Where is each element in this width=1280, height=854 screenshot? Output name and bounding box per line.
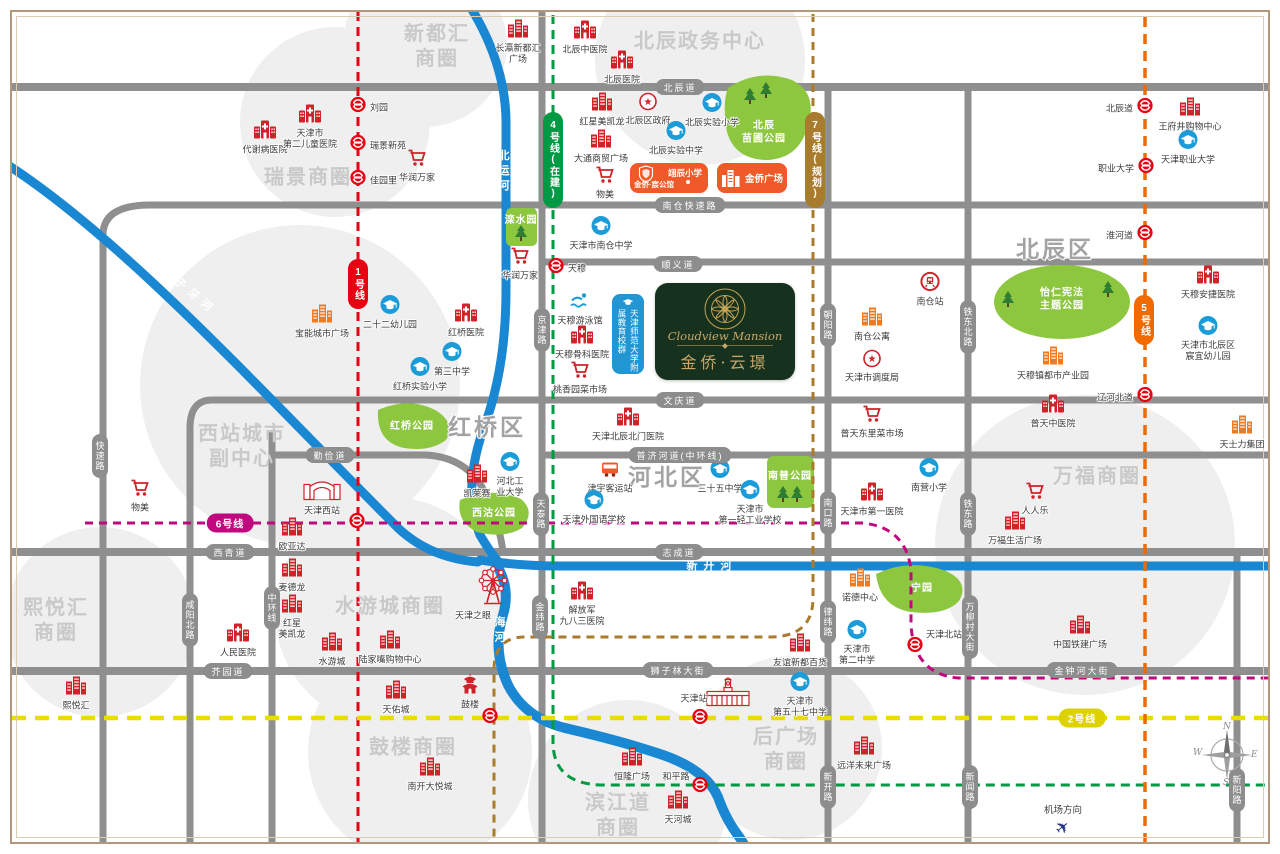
poi-label: 代谢病医院: [242, 144, 287, 155]
metro-station-icon: [350, 97, 366, 118]
tree-icon: [760, 82, 773, 104]
poi-label: 天津外国语学校: [562, 514, 625, 525]
river-label: 子牙河: [171, 273, 220, 318]
poi-icon-rail: [920, 272, 940, 297]
park-label: 宁园: [911, 583, 933, 596]
project-plaza-card: 金侨广场: [717, 163, 787, 193]
metro-station-label: 北辰道: [1106, 102, 1133, 115]
project-name-en: Cloudview Mansion: [668, 329, 783, 343]
poi-icon-school: [666, 121, 686, 146]
poi-icon-swim: [570, 291, 590, 316]
poi-icon-bldo: [311, 302, 333, 329]
metro-station-icon: [1137, 225, 1153, 246]
road-label: 京津路: [534, 308, 550, 352]
poi-label: 南营小学: [911, 482, 947, 493]
poi-label: 友谊新都百货: [773, 657, 827, 668]
poi-icon-hospital: [1041, 394, 1065, 419]
poi-icon-ferris: [474, 566, 512, 611]
poi-icon-cart: [130, 478, 150, 503]
graduation-cap-icon: [619, 299, 637, 306]
business-circle-label: 北辰政务中心: [634, 30, 766, 55]
poi-icon-hospital: [454, 303, 478, 328]
poi-icon-bldr: [281, 592, 303, 619]
metro-station-icon: [350, 135, 366, 156]
poi-label: 天河城: [664, 814, 691, 825]
poi-label: 南仓站: [916, 296, 943, 307]
mansion-name: 金侨·宸公馆: [634, 179, 674, 190]
metro-line-badge: 2号线: [1059, 709, 1106, 728]
tree-icon: [791, 486, 804, 508]
poi-label: 天津市 第五十七中学: [773, 696, 827, 718]
road-label: 天泰路: [533, 492, 549, 536]
poi-icon-hospital: [226, 623, 250, 648]
poi-label: 万福生活广场: [988, 535, 1042, 546]
poi-icon-cart: [862, 404, 882, 429]
poi-icon-bldr: [667, 788, 689, 815]
road-label: 勤俭道: [305, 447, 354, 463]
poi-label: 天津市 第二儿童医院: [283, 128, 337, 150]
poi-label: 天津市北辰区 宸宜幼儿园: [1181, 340, 1235, 362]
road-label: 中环线: [264, 586, 280, 630]
district-label: 红桥区: [448, 408, 526, 442]
project-name-cn: 金侨·云璟: [680, 349, 769, 373]
poi-label: 天士力集团: [1219, 439, 1264, 450]
poi-icon-bldr: [281, 556, 303, 583]
metro-station-label: 和平路: [662, 770, 689, 783]
road-label: 普济河道(中环线): [629, 447, 732, 463]
map-canvas: 红桥区河北区北辰区新都汇 商圈北辰政务中心瑞景商圈西站城市 副中心万福商圈熙悦汇…: [0, 0, 1280, 854]
map-overlay: 红桥区河北区北辰区新都汇 商圈北辰政务中心瑞景商圈西站城市 副中心万福商圈熙悦汇…: [0, 0, 1280, 854]
river-label: 北运河: [495, 150, 511, 195]
poi-icon-school: [584, 490, 604, 515]
compass-w: W: [1193, 748, 1202, 758]
road-label: 金纬路: [532, 595, 548, 639]
poi-icon-school: [1178, 130, 1198, 155]
building-icon: [721, 169, 741, 187]
metro-line-badge: 1号线: [348, 259, 368, 309]
airport-direction: 机场方向 ✈: [1030, 802, 1096, 838]
poi-label: 天穆安捷医院: [1181, 289, 1235, 300]
business-circle-label: 西站城市 副中心: [198, 422, 286, 472]
poi-label: 长瀛新都汇 广场: [495, 43, 540, 65]
metro-line-badge: 4号线(在建): [543, 112, 563, 208]
metro-line-badge: 5号线: [1134, 295, 1154, 345]
business-circle-label: 后广场 商圈: [753, 725, 819, 775]
park-label: 北辰 苗圃公园: [742, 121, 786, 146]
poi-label: 北辰医院: [604, 74, 640, 85]
poi-icon-cart: [407, 148, 427, 173]
poi-icon-bldr: [853, 734, 875, 761]
metro-station-icon: [482, 708, 498, 729]
tree-icon: [515, 225, 528, 247]
poi-icon-hospital: [570, 325, 594, 350]
poi-icon-bldr: [789, 631, 811, 658]
poi-icon-bldr: [419, 755, 441, 782]
poi-icon-bldr: [590, 127, 612, 154]
metro-station-label: 职业大学: [1098, 162, 1134, 175]
poi-label: 陆家嘴购物中心: [358, 654, 421, 665]
road-label: 文庆道: [655, 392, 704, 408]
road-label: 快速路: [92, 434, 108, 478]
tree-icon: [744, 88, 757, 110]
road-label: 顺义道: [653, 256, 702, 272]
metro-station-label: 佳园里: [370, 174, 397, 187]
poi-icon-bus: [600, 459, 620, 484]
poi-label: 远洋未来广场: [837, 760, 891, 771]
poi-label: 诺德中心: [842, 592, 878, 603]
metro-line-badge: 6号线: [207, 514, 254, 533]
poi-icon-hospital: [253, 120, 277, 145]
poi-icon-bldo: [861, 305, 883, 332]
poi-icon-bldr: [591, 90, 613, 117]
park-label: 怡仁宪法 主题公园: [1040, 288, 1084, 313]
metro-station-icon: [692, 777, 708, 798]
poi-label: 欧亚达: [278, 541, 305, 552]
school-district-badge: 天津师范大学附属教育校群: [612, 294, 644, 374]
metro-station-icon: [1137, 98, 1153, 119]
poi-label: 普天中医院: [1030, 418, 1075, 429]
school-label: 翊辰小学: [668, 167, 702, 179]
poi-label: 三十五中学: [697, 483, 742, 494]
poi-label: 第三中学: [434, 366, 470, 377]
road-label: 芥园道: [203, 663, 252, 679]
project-divider: [677, 345, 773, 346]
poi-label: 恒隆广场: [614, 771, 650, 782]
poi-icon-pavilion: [459, 673, 481, 700]
poi-icon-cart: [570, 360, 590, 385]
poi-label: 红桥医院: [448, 327, 484, 338]
poi-icon-school: [740, 480, 760, 505]
poi-label: 河北工 业大学: [496, 476, 523, 498]
metro-station-label: 瑞景新苑: [370, 139, 406, 152]
poi-label: 天津西站: [304, 505, 340, 516]
park-label: 红桥公园: [390, 421, 434, 434]
school-district-text: 天津师范大学附属教育校群: [616, 309, 641, 374]
poi-label: 凯莱赛: [463, 488, 490, 499]
poi-icon-bldr: [281, 515, 303, 542]
poi-icon-bldo: [1042, 344, 1064, 371]
poi-icon-bldr: [466, 462, 488, 489]
poi-icon-school: [380, 295, 400, 320]
poi-label: 物美: [131, 502, 149, 513]
metro-station-icon: [1137, 387, 1153, 408]
poi-label: 红星美凯龙: [579, 116, 624, 127]
compass-rose: N E S W: [1198, 726, 1256, 784]
road-label: 金钟河大街: [1046, 662, 1117, 678]
poi-icon-school: [919, 458, 939, 483]
poi-icon-school: [410, 357, 430, 382]
road-label: 铁东北路: [960, 300, 976, 354]
poi-icon-cart: [595, 165, 615, 190]
poi-icon-bldr: [65, 674, 87, 701]
plaza-name: 金侨广场: [745, 171, 783, 185]
poi-label: 天津之眼: [455, 611, 491, 622]
poi-label: 普天东里菜市场: [840, 428, 903, 439]
poi-icon-sxi: [301, 475, 343, 506]
poi-label: 北辰中医院: [562, 44, 607, 55]
road-label: 南口路: [820, 491, 836, 535]
poi-label: 天津市 第一轻工业学校: [718, 504, 781, 526]
business-circle-label: 滨江道 商圈: [585, 791, 651, 841]
poi-label: 南仓公寓: [854, 331, 890, 342]
svg-text:★: ★: [644, 97, 653, 108]
poi-label: 天津市第一医院: [840, 506, 903, 517]
poi-icon-star: ★: [639, 93, 657, 116]
poi-label: 天津职业大学: [1161, 154, 1215, 165]
poi-label: 华润万家: [399, 172, 435, 183]
poi-label: 天津市南仓中学: [569, 240, 632, 251]
tree-icon: [1002, 291, 1015, 313]
business-circle-label: 万福商圈: [1053, 465, 1141, 490]
poi-label: 天穆骨科医院: [555, 349, 609, 360]
poi-icon-hospital: [573, 20, 597, 45]
compass-n: N: [1223, 722, 1231, 732]
poi-icon-stj: [705, 678, 751, 713]
business-circle-label: 新都汇 商圈: [404, 22, 470, 72]
project-mansion-card: 翊辰小学 金侨·宸公馆: [630, 163, 708, 193]
metro-station-label: 天穆: [568, 262, 586, 275]
poi-icon-hospital: [1196, 265, 1220, 290]
poi-icon-school: [702, 93, 722, 118]
poi-icon-cart: [510, 246, 530, 271]
business-circle-label: 水游城商圈: [335, 595, 445, 620]
metro-station-label: 淮河道: [1106, 229, 1133, 242]
district-label: 北辰区: [1016, 230, 1094, 264]
road-label: 律纬路: [820, 600, 836, 644]
compass-icon: [1198, 726, 1256, 784]
poi-icon-bldo: [849, 566, 871, 593]
poi-label: 红桥实验小学: [393, 381, 447, 392]
poi-label: 熙悦汇: [62, 700, 89, 711]
poi-label: 桃香园菜市场: [553, 384, 607, 395]
poi-icon-hospital: [298, 104, 322, 129]
road-label: 朝阳路: [820, 303, 836, 347]
poi-icon-cart: [1025, 481, 1045, 506]
metro-station-icon: [1138, 158, 1154, 179]
road-label: 万柳村大街: [962, 595, 978, 659]
poi-label: 大通商贸广场: [574, 153, 628, 164]
poi-icon-hospital: [610, 50, 634, 75]
road-label: 咸阳北路: [182, 593, 198, 647]
poi-label: 二十二幼儿园: [363, 319, 417, 330]
park-label: 西沽公园: [472, 508, 516, 521]
poi-label: 天津市 第二中学: [839, 644, 875, 666]
poi-icon-school: [1198, 316, 1218, 341]
poi-label: 天津北辰北门医院: [592, 431, 664, 442]
road-label: 铁东路: [960, 492, 976, 536]
metro-station-icon: [907, 637, 923, 658]
road-label: 志成道: [654, 544, 703, 560]
poi-label: 鼓楼: [461, 699, 479, 710]
poi-icon-bldr: [507, 17, 529, 44]
poi-icon-bldr: [1004, 509, 1026, 536]
poi-label: 华润万家: [502, 270, 538, 281]
poi-icon-bldr: [621, 745, 643, 772]
poi-icon-bldr: [1069, 613, 1091, 640]
road-label: 狮子林大街: [642, 662, 713, 678]
poi-icon-school: [591, 216, 611, 241]
project-logo-card: Cloudview Mansion 金侨·云璟: [655, 283, 795, 380]
poi-icon-bldo: [1231, 413, 1253, 440]
road-label: 北辰道: [655, 79, 704, 95]
business-circle-label: 瑞景商圈: [264, 166, 352, 191]
business-circle-label: 鼓楼商圈: [369, 736, 457, 761]
poi-icon-school: [790, 672, 810, 697]
road-label: 新开路: [820, 765, 836, 809]
road-label: 新闻路: [962, 765, 978, 809]
poi-icon-hospital: [570, 581, 594, 606]
poi-label: 天津站: [680, 694, 707, 705]
poi-label: 南开大悦城: [407, 781, 452, 792]
metro-station-icon: [548, 258, 564, 279]
road-label: 南仓快速路: [654, 197, 725, 213]
poi-label: 宝能城市广场: [295, 328, 349, 339]
poi-label: 天津市调度局: [845, 372, 899, 383]
poi-label: 北辰区政府: [625, 115, 670, 126]
compass-s: S: [1223, 778, 1229, 788]
poi-label: 天穆镇都市产业园: [1017, 370, 1089, 381]
river-label: 海河: [491, 616, 507, 646]
poi-label: 北辰实验中学: [649, 145, 703, 156]
poi-label: 解放军 九八三医院: [559, 605, 604, 627]
metro-line-badge: 7号线(规划): [805, 112, 825, 208]
poi-label: 天佑城: [382, 704, 409, 715]
park-label: 南普公园: [768, 471, 812, 484]
poi-icon-school: [847, 620, 867, 645]
metro-station-label: 天津北站: [926, 628, 962, 641]
poi-icon-hospital: [616, 407, 640, 432]
poi-label: 物美: [596, 189, 614, 200]
metro-station-label: 刘园: [370, 101, 388, 114]
svg-text:★: ★: [868, 354, 877, 365]
tree-icon: [1102, 281, 1115, 303]
poi-label: 红星 美凯龙: [278, 618, 305, 640]
poi-icon-bldr: [1179, 95, 1201, 122]
poi-label: 中国铁建广场: [1053, 639, 1107, 650]
business-circle-label: 熙悦汇 商圈: [23, 596, 89, 646]
metro-station-icon: [350, 170, 366, 191]
metro-station-icon: [349, 513, 365, 534]
road-label: 西青道: [205, 544, 254, 560]
school-dot: [686, 180, 690, 184]
poi-icon-school: [442, 342, 462, 367]
poi-label: 人民医院: [220, 647, 256, 658]
compass-e: E: [1251, 750, 1258, 760]
poi-label: 水游城: [318, 656, 345, 667]
school-district-line1: 天津师范大学: [629, 309, 639, 363]
project-emblem-icon: [703, 287, 747, 331]
poi-icon-star: ★: [863, 350, 881, 373]
district-label: 河北区: [628, 458, 706, 492]
poi-label: 北辰实验小学: [685, 117, 739, 128]
poi-icon-bldr: [379, 628, 401, 655]
poi-icon-hospital: [860, 482, 884, 507]
metro-station-label: 辽河北道: [1097, 391, 1133, 404]
poi-icon-school: [500, 452, 520, 477]
poi-icon-bldr: [321, 630, 343, 657]
poi-icon-bldr: [385, 678, 407, 705]
